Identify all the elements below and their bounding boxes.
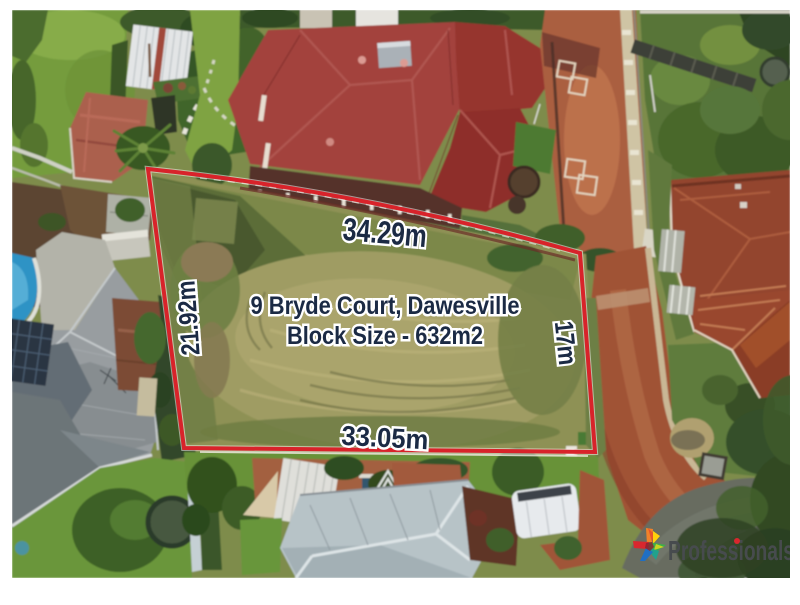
svg-text:9 Bryde Court, Dawesville: 9 Bryde Court, Dawesville bbox=[251, 292, 520, 320]
svg-text:34.29m: 34.29m bbox=[342, 211, 429, 254]
svg-text:Block Size - 632m2: Block Size - 632m2 bbox=[287, 322, 483, 350]
svg-text:21.92m: 21.92m bbox=[170, 280, 205, 357]
svg-text:17m: 17m bbox=[549, 320, 583, 367]
svg-text:Professionals: Professionals bbox=[668, 535, 794, 566]
svg-text:33.05m: 33.05m bbox=[341, 420, 430, 456]
